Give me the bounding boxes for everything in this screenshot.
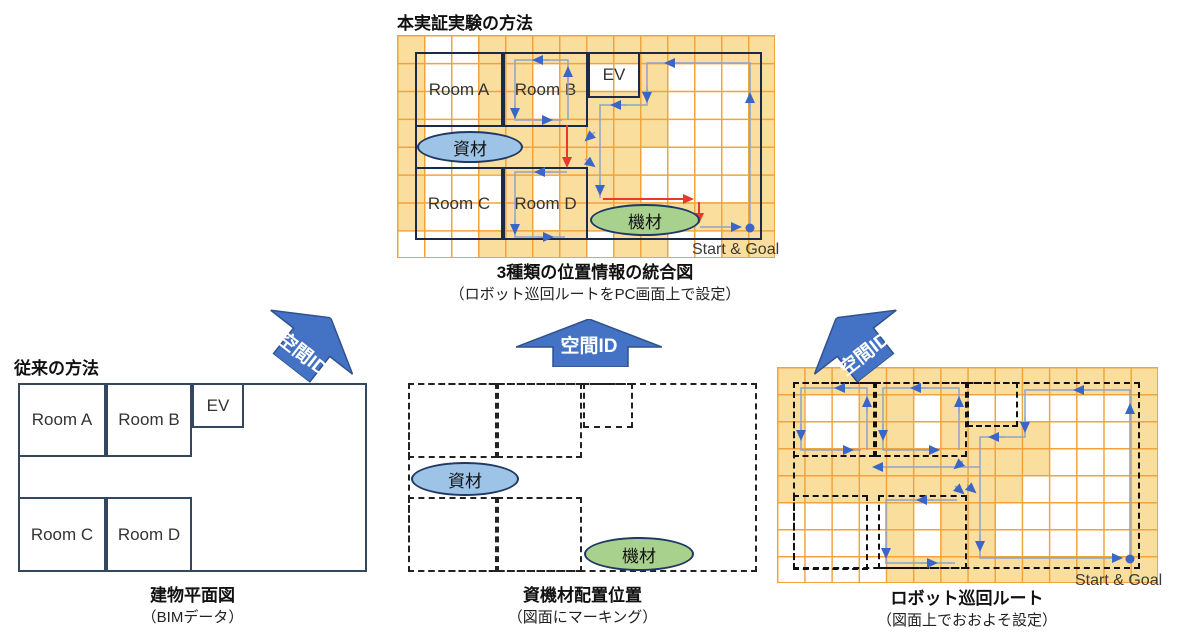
room-b-label: Room B bbox=[118, 410, 179, 430]
equipment-oval: 機材 bbox=[584, 537, 694, 571]
floorplan-caption-title: 建物平面図 bbox=[18, 585, 367, 608]
room-c: Room C bbox=[18, 497, 106, 572]
floorplan-caption: 建物平面図 （BIMデータ） bbox=[18, 585, 367, 628]
figure-canvas: 本実証実験の方法 Room A Room B EV Room C Room D bbox=[0, 0, 1200, 633]
room-b-loop bbox=[883, 388, 959, 450]
floorplan-caption-sub: （BIMデータ） bbox=[18, 608, 367, 628]
route-caption: ロボット巡回ルート （図面上でおおよそ設定） bbox=[787, 588, 1147, 631]
start-goal-dot bbox=[746, 224, 755, 233]
room-d: Room D bbox=[106, 497, 192, 572]
room-c-label: Room C bbox=[31, 525, 93, 545]
ev-label: EV bbox=[207, 396, 230, 416]
ev-room: EV bbox=[192, 383, 244, 428]
equipment-oval: 機材 bbox=[590, 204, 700, 236]
up-arrow-icon: 空間ID bbox=[516, 319, 662, 367]
room-d-loop bbox=[515, 172, 567, 237]
start-goal-label: Start & Goal bbox=[692, 241, 779, 259]
materials-label: 資材 bbox=[448, 467, 482, 492]
equipment-label: 機材 bbox=[628, 208, 662, 233]
materials-label: 資材 bbox=[453, 135, 487, 160]
materials-marking-diagram: 資材 機材 bbox=[408, 383, 757, 572]
room-d-loop bbox=[886, 500, 957, 563]
main-route-line bbox=[980, 390, 1130, 559]
start-goal-dot bbox=[1126, 555, 1135, 564]
start-goal-label: Start & Goal bbox=[1075, 572, 1162, 590]
spatial-id-arrow-middle: 空間ID bbox=[516, 319, 662, 367]
materials-caption-sub: （図面にマーキング） bbox=[408, 608, 757, 628]
materials-oval: 資材 bbox=[411, 462, 519, 496]
integrated-caption-title: 3種類の位置情報の統合図 bbox=[400, 262, 790, 285]
materials-caption: 資機材配置位置 （図面にマーキング） bbox=[408, 585, 757, 628]
spatial-id-label: 空間ID bbox=[560, 334, 617, 357]
materials-caption-title: 資機材配置位置 bbox=[408, 585, 757, 608]
main-route-line bbox=[600, 63, 750, 228]
room-a-dashed bbox=[408, 383, 497, 458]
experiment-method-title: 本実証実験の方法 bbox=[397, 9, 533, 34]
route-caption-title: ロボット巡回ルート bbox=[787, 588, 1147, 611]
room-a-label: Room A bbox=[32, 410, 92, 430]
room-b-dashed bbox=[497, 383, 582, 458]
integrated-diagram: Room A Room B EV Room C Room D bbox=[397, 35, 775, 258]
room-b: Room B bbox=[106, 383, 192, 457]
bim-floorplan-diagram: Room A Room B EV Room C Room D bbox=[18, 383, 367, 572]
room-d-label: Room D bbox=[118, 525, 180, 545]
room-d-dashed bbox=[497, 497, 582, 572]
ev-room-dashed bbox=[583, 383, 633, 428]
room-a: Room A bbox=[18, 383, 106, 457]
conventional-method-title: 従来の方法 bbox=[14, 354, 99, 379]
integrated-caption-sub: （ロボット巡回ルートをPC画面上で設定） bbox=[400, 285, 790, 305]
route-caption-sub: （図面上でおおよそ設定） bbox=[787, 611, 1147, 631]
room-c-dashed bbox=[408, 497, 497, 572]
materials-oval: 資材 bbox=[417, 131, 523, 163]
equipment-label: 機材 bbox=[622, 542, 656, 567]
integrated-caption: 3種類の位置情報の統合図 （ロボット巡回ルートをPC画面上で設定） bbox=[400, 262, 790, 305]
room-b-loop bbox=[515, 60, 568, 120]
